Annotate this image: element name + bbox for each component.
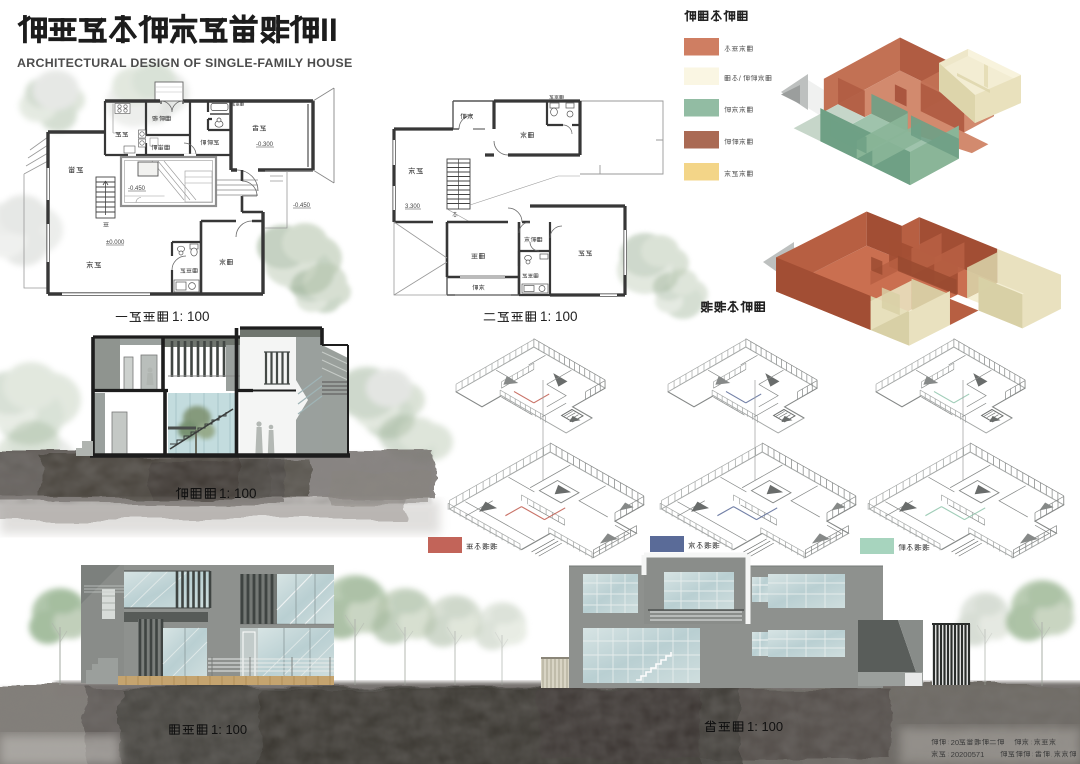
svg-text:1: 100: 1: 100 xyxy=(540,309,578,324)
svg-text:1: 100: 1: 100 xyxy=(211,722,247,737)
svg-text:20: 20 xyxy=(951,738,959,747)
svg-text:II: II xyxy=(320,12,338,48)
svg-text:ARCHITECTURAL DESIGN OF SINGLE: ARCHITECTURAL DESIGN OF SINGLE-FAMILY HO… xyxy=(17,56,353,70)
svg-text:/: / xyxy=(739,74,742,83)
svg-text:1: 100: 1: 100 xyxy=(219,486,257,501)
svg-text:1: 100: 1: 100 xyxy=(172,309,210,324)
svg-text:1: 100: 1: 100 xyxy=(747,719,783,734)
svg-text:20200571: 20200571 xyxy=(951,750,985,759)
